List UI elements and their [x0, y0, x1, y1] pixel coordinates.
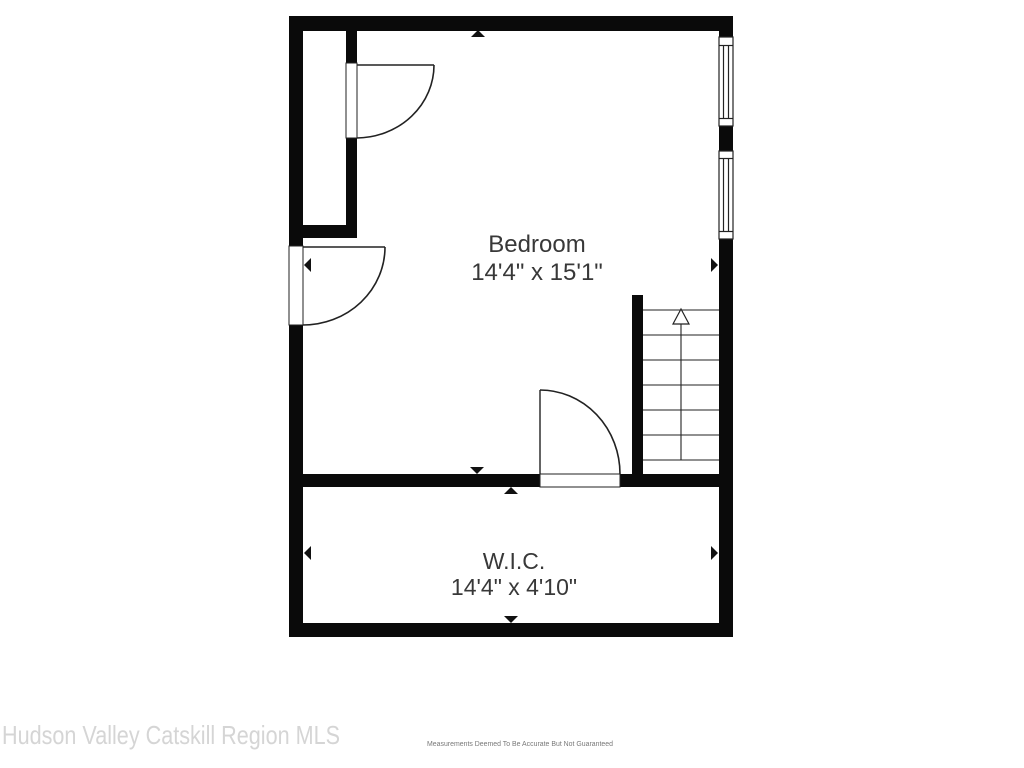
- wall-top: [289, 16, 733, 31]
- marker-bedroom-left: [304, 258, 311, 272]
- marker-wic-top: [504, 487, 518, 494]
- marker-wic-left: [304, 546, 311, 560]
- marker-bedroom-top: [471, 30, 485, 37]
- marker-wic-right: [711, 546, 718, 560]
- room-label-wic: W.I.C.: [483, 548, 546, 574]
- dimension-markers: [304, 30, 718, 623]
- wall-closet-upper: [346, 31, 357, 63]
- door-bedroom-entry: [289, 246, 385, 325]
- floor-plan-drawing: Bedroom 14'4" x 15'1" W.I.C. 14'4" x 4'1…: [0, 0, 1024, 768]
- marker-bedroom-bottom: [470, 467, 484, 474]
- wall-closet-cap: [289, 225, 357, 238]
- window-lower: [719, 151, 733, 239]
- mls-watermark: Hudson Valley Catskill Region MLS: [2, 720, 340, 750]
- staircase: [643, 309, 719, 460]
- door-swing-arc: [303, 247, 385, 325]
- door-wic: [540, 390, 620, 487]
- door-closet: [346, 63, 434, 138]
- wall-left-upper: [289, 16, 303, 246]
- wall-stairs: [632, 295, 643, 487]
- door-swing-arc: [540, 390, 620, 474]
- up-arrow-icon: [673, 309, 689, 324]
- marker-bedroom-right: [711, 258, 718, 272]
- room-label-bedroom: Bedroom: [488, 231, 585, 258]
- wall-bottom: [289, 623, 733, 637]
- wall-closet-lower: [346, 138, 357, 238]
- floor-plan-page: Bedroom 14'4" x 15'1" W.I.C. 14'4" x 4'1…: [0, 0, 1024, 768]
- wall-room-divider: [289, 474, 733, 487]
- room-dimensions-bedroom: 14'4" x 15'1": [471, 259, 603, 286]
- window-upper: [719, 37, 733, 126]
- marker-wic-bottom: [504, 616, 518, 623]
- room-dimensions-wic: 14'4" x 4'10": [451, 574, 577, 600]
- measurement-disclaimer: Measurements Deemed To Be Accurate But N…: [427, 741, 613, 748]
- door-swing-arc: [357, 65, 434, 138]
